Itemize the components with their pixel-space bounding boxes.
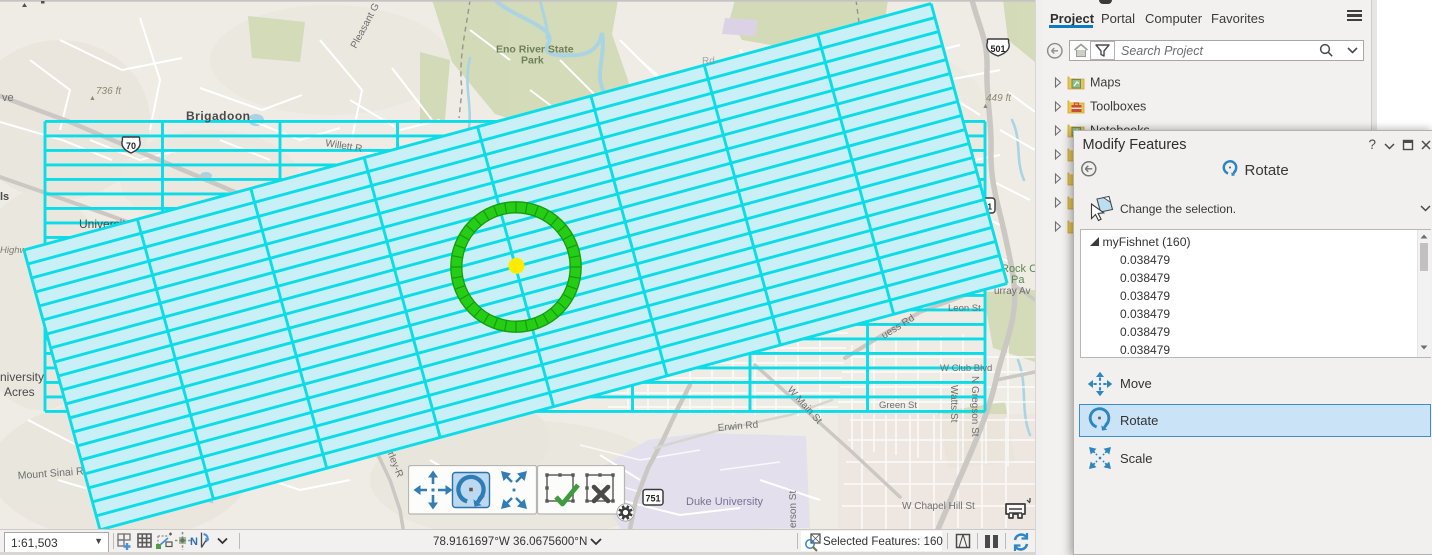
svg-text:Rd: Rd: [702, 56, 715, 67]
svg-text:erson St: erson St: [788, 491, 799, 528]
svg-text:Green St: Green St: [879, 400, 917, 411]
svg-text:urray Av: urray Av: [994, 286, 1031, 297]
svg-text:501: 501: [990, 44, 1005, 54]
svg-text:W Chapel Hill St: W Chapel Hill St: [902, 501, 975, 512]
svg-text:N Gregson St: N Gregson St: [969, 376, 980, 437]
svg-text:Watts St: Watts St: [948, 385, 959, 423]
svg-text:ve: ve: [2, 92, 14, 104]
svg-text:Brigadoon: Brigadoon: [186, 109, 251, 123]
svg-text:Leon St: Leon St: [948, 303, 981, 314]
svg-text:ls: ls: [0, 191, 9, 203]
svg-text:Duke University: Duke University: [686, 496, 764, 508]
svg-text:751: 751: [645, 494, 660, 504]
svg-text:Pa: Pa: [1011, 274, 1025, 286]
svg-text:N: N: [190, 536, 198, 548]
svg-text:Park: Park: [521, 55, 544, 67]
svg-text:736 ft: 736 ft: [96, 86, 122, 97]
svg-text:70: 70: [126, 141, 136, 151]
svg-text:▲: ▲: [982, 103, 989, 110]
svg-text:▲: ▲: [89, 95, 96, 102]
svg-text:Acres: Acres: [4, 385, 35, 399]
svg-text:W Club Blvd: W Club Blvd: [940, 363, 992, 374]
svg-text:Search Project: Search Project: [1121, 44, 1204, 58]
svg-text:449 ft: 449 ft: [986, 93, 1012, 104]
svg-text:niversity: niversity: [0, 370, 44, 384]
